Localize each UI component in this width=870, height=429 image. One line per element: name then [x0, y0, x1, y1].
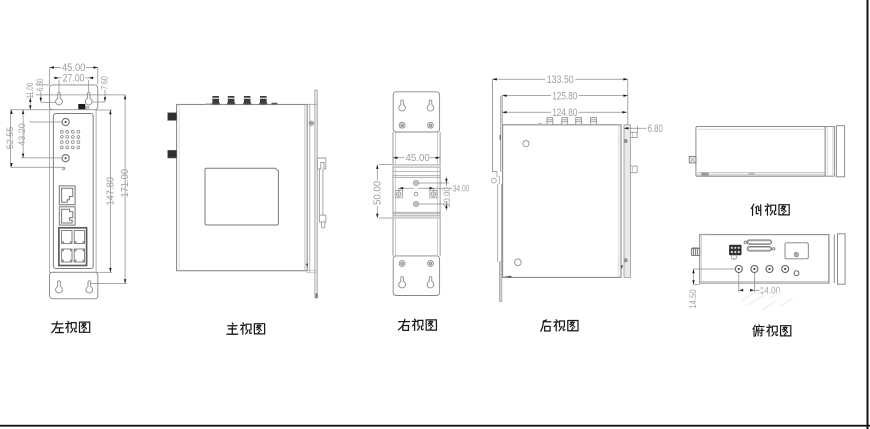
svg-text:6.80: 6.80	[35, 78, 46, 91]
svg-text:125.80: 125.80	[552, 90, 577, 102]
svg-text:124.80: 124.80	[552, 107, 577, 119]
svg-text:43.20: 43.20	[17, 123, 28, 146]
svg-text:14.50: 14.50	[687, 289, 698, 309]
svg-text:34.00: 34.00	[453, 183, 470, 193]
svg-text:20.00: 20.00	[442, 187, 453, 207]
svg-text:171.00: 171.00	[120, 169, 131, 198]
svg-text:11.00: 11.00	[25, 83, 36, 99]
svg-text:50.00: 50.00	[373, 180, 384, 205]
svg-text:27.00: 27.00	[63, 73, 85, 85]
svg-text:133.50: 133.50	[547, 74, 574, 86]
svg-text:6.80: 6.80	[648, 123, 663, 135]
svg-text:45.00: 45.00	[406, 153, 431, 164]
svg-text:52.55: 52.55	[5, 127, 16, 150]
svg-text:7.60: 7.60	[100, 76, 111, 90]
svg-text:147.80: 147.80	[105, 177, 116, 206]
